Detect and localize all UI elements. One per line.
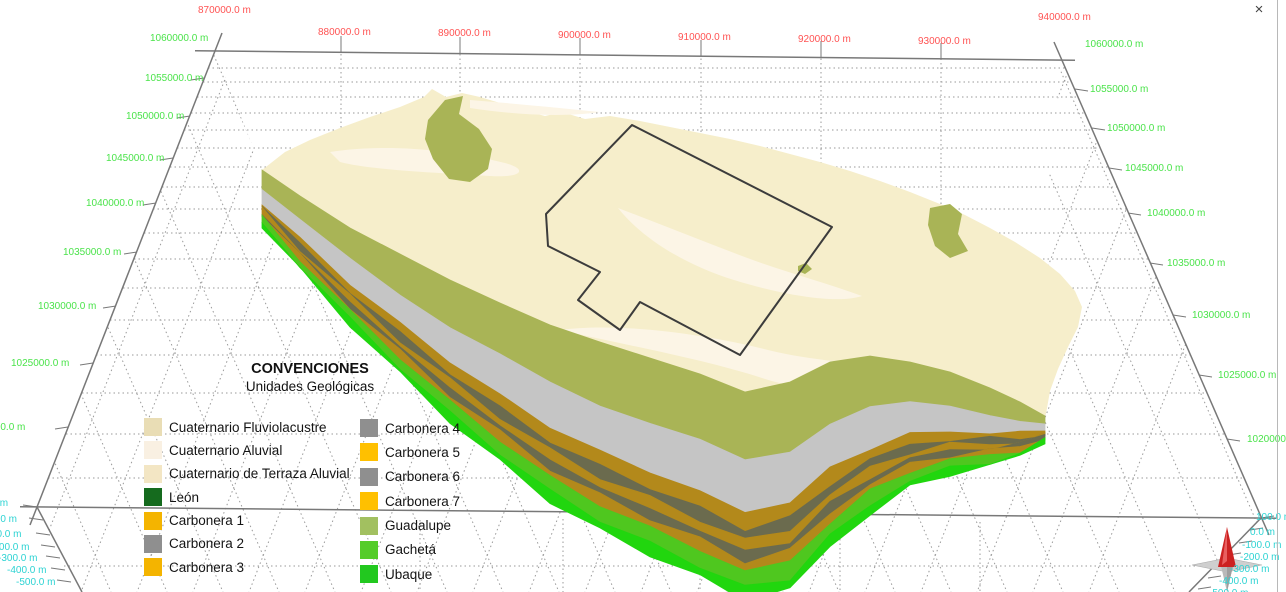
close-button[interactable]: × bbox=[1248, 0, 1270, 20]
legend-subtitle: Unidades Geológicas bbox=[130, 379, 490, 394]
legend-item: Carbonera 6 bbox=[360, 468, 460, 486]
legend-swatch bbox=[360, 492, 378, 510]
grid-line-diagonal bbox=[1052, 51, 1286, 592]
axis-label-z: -200.0 m bbox=[1240, 552, 1279, 563]
axis-label-z: 0.0 m bbox=[1250, 527, 1275, 538]
axis-label-y: 1020000.0 m bbox=[0, 422, 25, 433]
grid-line-diagonal bbox=[0, 51, 55, 592]
axis-label-x: 870000.0 m bbox=[198, 5, 251, 16]
tick-y-right bbox=[1075, 89, 1088, 91]
axis-label-x: 890000.0 m bbox=[438, 28, 491, 39]
axis-label-x: 880000.0 m bbox=[318, 27, 371, 38]
legend-label: Gachetá bbox=[385, 542, 436, 557]
axis-label-x: 910000.0 m bbox=[678, 32, 731, 43]
box-edge bbox=[195, 51, 1075, 61]
legend-label: Carbonera 2 bbox=[169, 536, 244, 551]
axis-label-z: -400.0 m bbox=[1219, 576, 1258, 587]
legend-label: Carbonera 6 bbox=[385, 469, 460, 484]
axis-label-z: 100.0 m bbox=[0, 498, 8, 509]
legend-swatch bbox=[144, 418, 162, 436]
legend-swatch bbox=[360, 517, 378, 535]
axis-label-y: 1040000.0 m bbox=[1147, 208, 1205, 219]
tick-y-left bbox=[143, 203, 156, 205]
legend-title: CONVENCIONES bbox=[130, 361, 490, 377]
axis-label-y: 1030000.0 m bbox=[38, 301, 96, 312]
legend-swatch bbox=[360, 468, 378, 486]
legend-item: Cuaternario Fluviolacustre bbox=[144, 418, 350, 436]
axis-label-y: 1050000.0 m bbox=[126, 111, 184, 122]
legend-label: Cuaternario Aluvial bbox=[169, 443, 282, 458]
legend-column-1: Cuaternario Fluviolacustre Cuaternario A… bbox=[144, 418, 350, 582]
axis-label-z: -500.0 m bbox=[16, 577, 55, 588]
axis-label-x: 930000.0 m bbox=[918, 36, 971, 47]
legend-item: Carbonera 3 bbox=[144, 558, 350, 576]
legend-label: Carbonera 4 bbox=[385, 421, 460, 436]
tick-z-left bbox=[41, 545, 55, 547]
app-window: 870000.0 m 880000.0 m 890000.0 m 900000.… bbox=[0, 0, 1286, 592]
legend-item: Gachetá bbox=[360, 541, 460, 559]
legend-swatch bbox=[360, 443, 378, 461]
tick-z-left bbox=[46, 556, 60, 558]
axis-label-z: -100.0 m bbox=[0, 529, 21, 540]
legend-label: Guadalupe bbox=[385, 518, 451, 533]
axis-label-y: 1025000.0 m bbox=[1218, 370, 1276, 381]
axis-label-z: -100.0 m bbox=[1242, 540, 1281, 551]
legend-item: Carbonera 7 bbox=[360, 492, 460, 510]
axis-label-z: -400.0 m bbox=[7, 565, 46, 576]
window-edge-divider bbox=[1277, 0, 1278, 592]
legend-item: Carbonera 4 bbox=[360, 419, 460, 437]
axis-label-y: 1020000.0 m bbox=[1247, 434, 1286, 445]
legend-label: Carbonera 1 bbox=[169, 513, 244, 528]
legend-label: León bbox=[169, 490, 199, 505]
grid-line-diagonal bbox=[0, 51, 111, 592]
legend-item: León bbox=[144, 488, 350, 506]
tick-y-right bbox=[1092, 128, 1105, 130]
legend-label: Cuaternario Fluviolacustre bbox=[169, 420, 327, 435]
tick-y-right bbox=[1199, 375, 1212, 377]
axis-label-y: 1030000.0 m bbox=[1192, 310, 1250, 321]
legend-label: Ubaque bbox=[385, 567, 432, 582]
axis-label-y: 1040000.0 m bbox=[86, 198, 144, 209]
tick-y-left bbox=[80, 363, 93, 365]
legend-item: Carbonera 5 bbox=[360, 443, 460, 461]
legend-item: Ubaque bbox=[360, 565, 460, 583]
axis-label-z: -300.0 m bbox=[1230, 564, 1269, 575]
tick-y-left bbox=[124, 252, 137, 254]
axis-label-x: 900000.0 m bbox=[558, 30, 611, 41]
legend-item: Cuaternario Aluvial bbox=[144, 441, 350, 459]
axis-label-z: 100.0 m bbox=[1256, 512, 1286, 523]
legend-swatch bbox=[144, 512, 162, 530]
tick-y-left bbox=[55, 427, 68, 429]
grid-line-diagonal bbox=[0, 51, 167, 592]
legend-item: Carbonera 2 bbox=[144, 535, 350, 553]
axis-label-y: 1035000.0 m bbox=[1167, 258, 1225, 269]
legend-item: Guadalupe bbox=[360, 517, 460, 535]
legend-label: Carbonera 5 bbox=[385, 445, 460, 460]
tick-z-left bbox=[51, 568, 65, 570]
axis-label-z: 0.0 m bbox=[0, 514, 17, 525]
axis-label-y: 1035000.0 m bbox=[63, 247, 121, 258]
tick-y-right bbox=[1227, 439, 1240, 441]
axis-label-y: 1060000.0 m bbox=[1085, 39, 1143, 50]
tick-y-right bbox=[1173, 315, 1186, 317]
tick-z-left bbox=[29, 518, 43, 520]
legend-swatch bbox=[144, 488, 162, 506]
legend-swatch bbox=[144, 535, 162, 553]
tick-z-left bbox=[36, 533, 50, 535]
legend-label: Carbonera 7 bbox=[385, 494, 460, 509]
tick-z-left bbox=[57, 580, 71, 582]
axis-label-y: 1055000.0 m bbox=[1090, 84, 1148, 95]
legend-label: Cuaternario de Terraza Aluvial bbox=[169, 466, 350, 481]
axis-label-x: 920000.0 m bbox=[798, 34, 851, 45]
legend-label: Carbonera 3 bbox=[169, 560, 244, 575]
axis-label-z: -200.0 m bbox=[0, 542, 29, 553]
legend-swatch bbox=[360, 419, 378, 437]
axis-label-y: 1045000.0 m bbox=[1125, 163, 1183, 174]
tick-y-right bbox=[1109, 168, 1122, 170]
axis-label-y: 1050000.0 m bbox=[1107, 123, 1165, 134]
axis-label-z: -500.0 m bbox=[1209, 588, 1248, 592]
axis-label-y: 1025000.0 m bbox=[11, 358, 69, 369]
legend-swatch bbox=[360, 565, 378, 583]
axis-label-y: 1045000.0 m bbox=[106, 153, 164, 164]
legend-swatch bbox=[144, 558, 162, 576]
axis-label-z: -300.0 m bbox=[0, 553, 37, 564]
legend-swatch bbox=[360, 541, 378, 559]
tick-y-right bbox=[1150, 263, 1163, 265]
legend-item: Cuaternario de Terraza Aluvial bbox=[144, 465, 350, 483]
legend-swatch bbox=[144, 441, 162, 459]
axis-label-x: 940000.0 m bbox=[1038, 12, 1091, 23]
legend-swatch bbox=[144, 465, 162, 483]
axis-label-y: 1055000.0 m bbox=[145, 73, 203, 84]
axis-label-y: 1060000.0 m bbox=[150, 33, 208, 44]
legend-column-2: Carbonera 4 Carbonera 5 Carbonera 6 Carb… bbox=[360, 419, 460, 590]
legend-item: Carbonera 1 bbox=[144, 512, 350, 530]
